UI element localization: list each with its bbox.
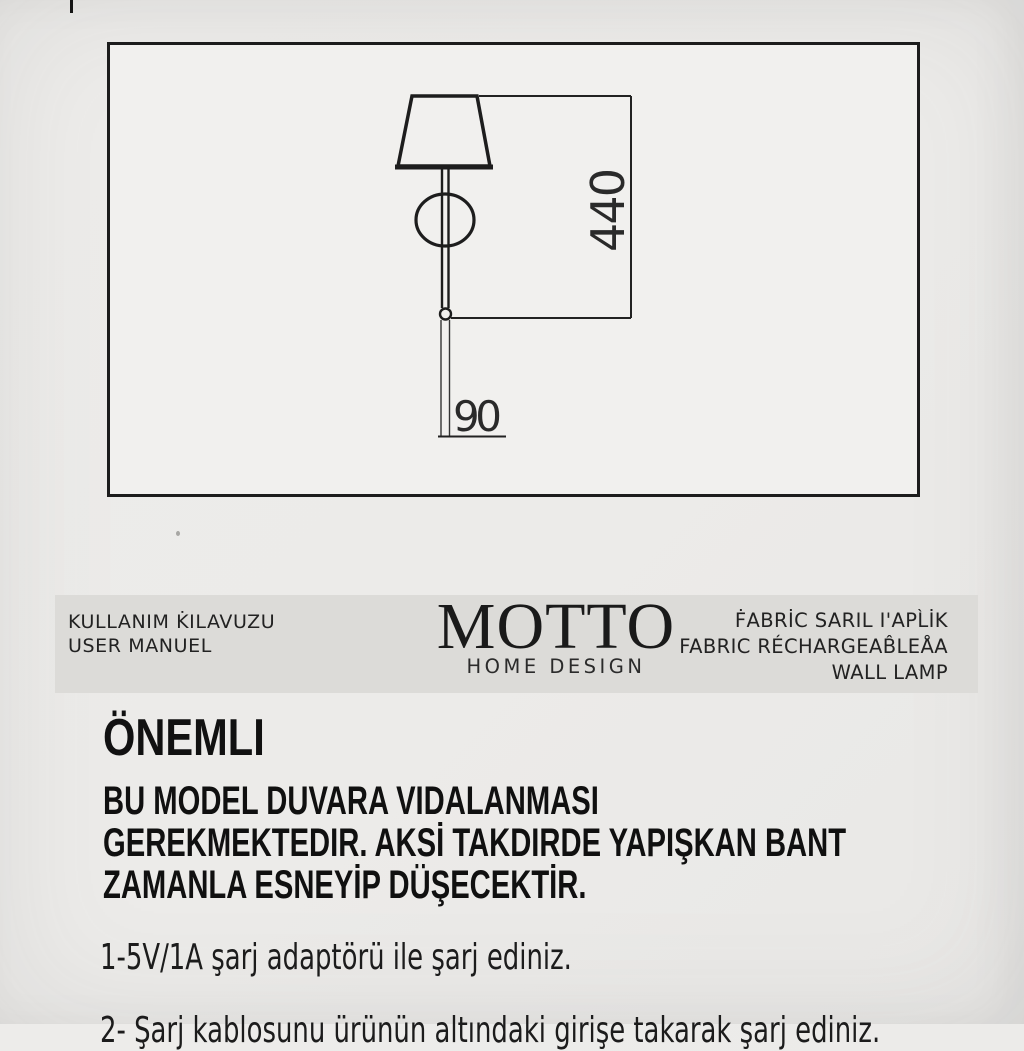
wall-mount-plate: [416, 194, 474, 246]
stem-end-knob: [440, 309, 451, 320]
header-band: KULLANIM K̇ILAVUZU USER MANUEL MOTTO HOM…: [55, 595, 978, 693]
dim-height-label: 440: [581, 168, 635, 252]
warning-line-2: GEREKMEKTEDIR. AKSİ TAKDIRDE YAPIŞKAN BA…: [103, 822, 1024, 864]
manual-page: { "drawing": { "height_label": "440", "w…: [0, 0, 1024, 1024]
product-title-tr: ḞABRİC SARIL I'APL̀İK: [679, 608, 948, 634]
product-title-block: ḞABRİC SARIL I'APL̀İK FABRIC RÉCHARGEAB̂…: [679, 608, 948, 686]
important-heading: ÖNEMLI: [103, 710, 305, 766]
brand-logo: MOTTO HOME DESIGN: [425, 595, 687, 678]
brand-name: MOTTO: [425, 597, 687, 657]
manual-title-tr: KULLANIM K̇ILAVUZU: [68, 610, 275, 634]
charging-instruction: 1-5V/1A şarj adaptörü ile şarj ediniz.: [100, 938, 755, 978]
charging-instruction-2-clipped: 2- Şarj kablosunu ürünün altındaki giriş…: [100, 1011, 1024, 1051]
manual-title-en: USER MANUEL: [68, 634, 275, 658]
manual-title-block: KULLANIM K̇ILAVUZU USER MANUEL: [68, 610, 275, 658]
product-title-en-2: WALL LAMP: [679, 660, 948, 686]
warning-line-3: ZAMANLA ESNEYİP DÜŞECEKTİR.: [103, 864, 1024, 906]
lampshade-outline: [398, 96, 490, 166]
dim-width-label: 90: [453, 392, 502, 441]
warning-line-1: BU MODEL DUVARA VIDALANMASI: [103, 780, 1024, 822]
mounting-warning-text: BU MODEL DUVARA VIDALANMASI GEREKMEKTEDI…: [103, 780, 1024, 906]
product-title-en-1: FABRIC RÉCHARGEAB̂LEÅA: [679, 634, 948, 660]
